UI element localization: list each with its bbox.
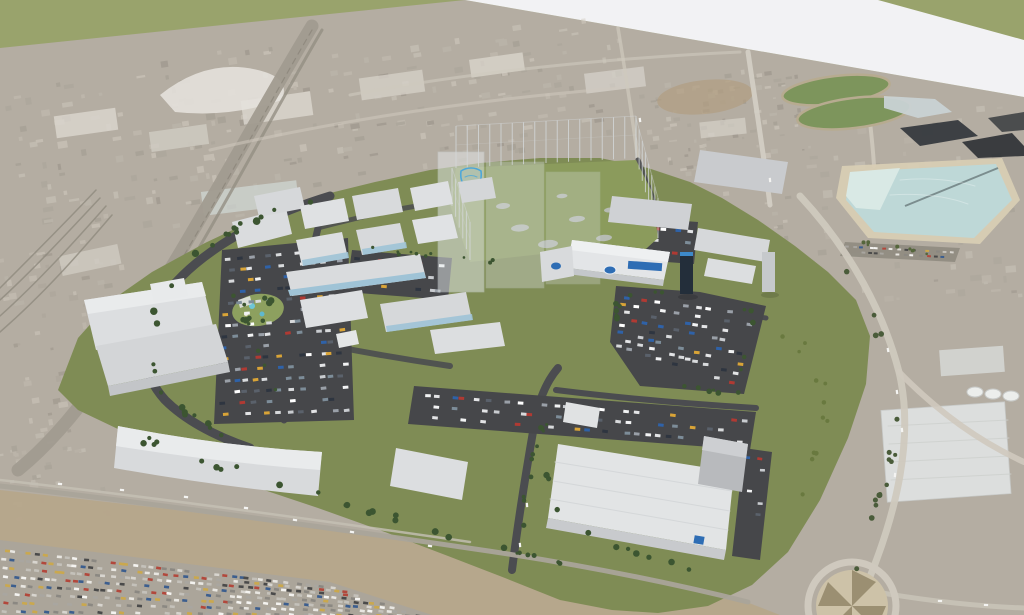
- urban-blocks-e-block: [822, 206, 828, 210]
- car-storage-rows-car: [177, 580, 182, 583]
- urban-blocks-w-block: [49, 291, 56, 297]
- south-strip-cars-car: [526, 413, 532, 416]
- trees-east-lot-tree: [712, 388, 715, 391]
- shrubs-east-field-tree: [803, 341, 807, 345]
- trees-east-lot-tree: [614, 316, 620, 322]
- trees-entrance-drive-tree: [535, 444, 539, 448]
- trees-east-lot-tree: [706, 388, 712, 394]
- urban-blocks-e-block: [958, 289, 966, 296]
- venue-logo-oval: [604, 266, 616, 274]
- trees-east-lot-tree: [742, 355, 746, 359]
- lagoon-parking-cars-car: [936, 251, 940, 253]
- west-lot-cars-car: [263, 355, 269, 358]
- north-lot-cars-car: [415, 288, 421, 291]
- car-storage-rows-car: [166, 579, 171, 582]
- urban-blocks-ne-block: [639, 94, 645, 99]
- urban-blocks-nw-block: [63, 190, 67, 195]
- urban-blocks-nw-block: [41, 109, 50, 116]
- car-storage-rows-car: [338, 604, 343, 607]
- urban-blocks-w-block: [13, 343, 18, 347]
- trees-east-lot-tree: [682, 384, 686, 388]
- urban-blocks-e-block: [823, 190, 833, 198]
- lagoon-parking-cars-car: [853, 246, 857, 248]
- trees-east-lot-tree: [715, 390, 721, 396]
- pylon-light-shadow: [761, 292, 779, 298]
- urban-blocks-w-block: [119, 264, 125, 270]
- urban-blocks-w-block: [42, 313, 47, 318]
- pylon-sign-dark-cap: [680, 252, 693, 256]
- car-storage-rows-car: [209, 600, 214, 603]
- car-storage-rows-car: [230, 590, 235, 593]
- car-storage-rows-car: [78, 580, 83, 583]
- urban-blocks-n-block: [581, 18, 586, 24]
- trees-lagoon-edge-tree: [908, 247, 911, 250]
- east-lot-cars-car: [703, 363, 709, 366]
- urban-blocks-n-block: [444, 146, 448, 149]
- shrubs-east-field-tree: [822, 400, 826, 404]
- east-lot-cars-car: [616, 344, 622, 348]
- south-strip-cars-car: [626, 421, 632, 424]
- urban-blocks-n-block: [606, 129, 612, 135]
- car-storage-rows-car: [19, 559, 24, 562]
- trees-east-lot-tree: [743, 308, 747, 312]
- trees-east-lot-tree: [613, 301, 619, 307]
- lagoon-parking-cars-car: [919, 255, 923, 257]
- car-storage-rows-car: [66, 587, 71, 590]
- urban-blocks-n-block: [423, 163, 428, 169]
- west-lot-cars-car: [288, 410, 294, 413]
- road-cars-vehicle: [519, 543, 522, 547]
- west-lot-cars-car: [223, 413, 229, 416]
- west-lot-cars-car: [255, 355, 261, 358]
- urban-blocks-nw-block: [228, 57, 237, 65]
- pylon-sign-dark: [680, 254, 693, 294]
- urban-blocks-ne-block: [694, 139, 697, 143]
- lagoon-parking-cars-car: [934, 256, 938, 258]
- urban-blocks-nw-block: [81, 149, 87, 156]
- trees-south-boundary-tree: [199, 459, 204, 464]
- west-lot-cars-car: [290, 399, 296, 402]
- east-lot-cars-car: [685, 357, 691, 360]
- trees-east-lot-tree: [739, 368, 743, 372]
- shrubs-east-field-tree: [797, 350, 800, 353]
- urban-blocks-e-block: [1005, 265, 1016, 273]
- lagoon-parking-cars-car: [845, 246, 849, 248]
- south-strip-cars-car: [453, 396, 459, 400]
- car-storage-rows-car: [107, 589, 112, 592]
- car-storage-rows-car: [183, 575, 188, 578]
- car-storage-rows-car: [71, 564, 76, 567]
- car-storage-rows-car: [292, 598, 297, 601]
- car-storage-rows-car: [341, 597, 346, 600]
- urban-blocks-n-block: [518, 147, 525, 153]
- road-cars-vehicle: [984, 604, 988, 606]
- east-lot-cars-car: [645, 354, 651, 357]
- urban-blocks-ne-block: [764, 71, 772, 76]
- south-strip-cars-car: [482, 409, 488, 412]
- urban-blocks-e-block: [884, 296, 894, 302]
- urban-blocks-n-block: [513, 41, 520, 48]
- trees-east-road-tree: [878, 492, 882, 496]
- east-lot-cars-car: [727, 310, 733, 313]
- treatment-tank-1: [967, 387, 983, 397]
- urban-blocks-ne-block: [756, 145, 758, 148]
- car-storage-rows-car: [53, 603, 58, 606]
- urban-blocks-n-block: [556, 74, 561, 80]
- car-storage-rows-car: [273, 580, 278, 583]
- west-lot-cars-car: [267, 400, 273, 403]
- trees-east-lot-tree: [614, 308, 619, 313]
- car-storage-rows-car: [323, 600, 328, 603]
- urban-blocks-e-block: [1011, 290, 1017, 293]
- west-lot-cars-car: [343, 386, 349, 389]
- urban-blocks-nw-block: [245, 50, 250, 56]
- trees-east-road-tree: [887, 450, 892, 455]
- urban-blocks-ne-block: [802, 149, 805, 151]
- trees-warehouse-tree: [585, 530, 591, 536]
- west-lot-cars-car: [337, 374, 343, 377]
- south-strip-cars-car: [623, 410, 629, 414]
- south-strip-cars-car: [433, 405, 439, 409]
- south-strip-cars-car: [458, 397, 464, 400]
- south-strip-cars-car: [742, 419, 748, 422]
- east-lot-cars-car: [649, 331, 655, 334]
- car-storage-rows-car: [296, 590, 301, 593]
- car-storage-rows-car: [81, 603, 86, 606]
- trees-west-arc-tree: [308, 199, 313, 204]
- trees-west-arc-tree: [210, 243, 215, 248]
- urban-blocks-e-block: [965, 251, 972, 259]
- west-lot-cars-car: [288, 365, 294, 368]
- car-storage-rows-car: [248, 586, 253, 589]
- south-strip-cars-car: [555, 404, 561, 407]
- urban-blocks-nw-block: [142, 220, 152, 228]
- west-lot-cars-car: [248, 278, 254, 281]
- west-lot-cars-car: [265, 254, 271, 258]
- car-storage-rows-car: [182, 599, 187, 602]
- car-storage-rows-car: [116, 604, 121, 607]
- trees-west-arc-tree: [179, 404, 186, 411]
- lagoon-parking-cars-car: [943, 251, 947, 253]
- west-lot-cars-car: [229, 268, 235, 272]
- car-storage-rows-car: [135, 612, 140, 615]
- warehouse-east-cars-car: [747, 490, 752, 493]
- trees-west-arc-tree: [205, 420, 211, 426]
- viewport: [0, 0, 1024, 615]
- trees-plaza-tree: [231, 294, 236, 299]
- south-strip-cars-car: [548, 425, 554, 428]
- road-cars-vehicle: [894, 473, 897, 477]
- trees-warehouse-tree: [633, 550, 640, 557]
- car-storage-rows-car: [244, 607, 249, 610]
- car-storage-rows-car: [142, 591, 147, 594]
- west-lot-cars-car: [321, 341, 327, 344]
- lagoon-parking-cars-car: [889, 248, 893, 250]
- west-lot-cars-car: [261, 378, 267, 382]
- pylon-sign-light: [762, 252, 775, 292]
- lagoon-parking-cars-car: [882, 248, 886, 250]
- car-storage-rows-car: [337, 593, 342, 596]
- urban-blocks-nw-block: [99, 92, 103, 96]
- west-lot-cars-car: [278, 366, 284, 369]
- south-strip-cars-car: [474, 398, 480, 402]
- car-storage-rows-car: [343, 593, 348, 596]
- car-storage-rows-car: [252, 577, 257, 580]
- urban-blocks-ne-block: [742, 137, 744, 139]
- urban-blocks-w-block: [32, 397, 40, 404]
- car-storage-rows-car: [278, 584, 283, 587]
- trees-north-streets-tree: [424, 254, 427, 257]
- car-storage-rows-car: [1, 558, 6, 561]
- car-storage-rows-car: [374, 606, 379, 609]
- trees-plaza-tree: [268, 297, 275, 304]
- urban-blocks-nw-block: [160, 60, 168, 67]
- car-storage-rows-car: [115, 597, 120, 600]
- road-cars-vehicle: [938, 600, 942, 602]
- trees-south-boundary-tree: [343, 503, 348, 508]
- car-storage-rows-car: [127, 604, 132, 607]
- ne-lot-cars-car: [672, 251, 678, 254]
- car-storage-rows-car: [111, 575, 116, 578]
- car-storage-rows-car: [100, 574, 105, 577]
- urban-blocks-ne-block: [771, 149, 778, 155]
- trees-lagoon-edge-tree: [861, 240, 865, 244]
- trees-entrance-drive-tree: [529, 475, 534, 480]
- trees-plaza-tree: [261, 318, 266, 323]
- trees-west-arc-tree: [182, 412, 188, 418]
- trees-north-streets-tree: [463, 256, 466, 259]
- urban-blocks-nw-block: [117, 112, 123, 117]
- west-lot-cars-car: [264, 411, 270, 414]
- urban-blocks-nw-block: [5, 105, 12, 111]
- north-lot-cars-car: [381, 285, 387, 289]
- east-lot-cars-car: [728, 350, 734, 353]
- car-storage-rows-car: [119, 576, 124, 579]
- car-storage-rows-car: [244, 581, 249, 584]
- urban-blocks-e-block: [950, 264, 956, 270]
- urban-blocks-ne-block: [684, 154, 688, 157]
- car-storage-rows-car: [164, 585, 169, 588]
- car-storage-rows-car: [281, 588, 286, 591]
- trees-warehouse-tree: [687, 567, 692, 572]
- west-lot-cars-car: [228, 302, 234, 305]
- urban-blocks-nw-block: [116, 155, 124, 163]
- trees-west-lot-medians-tree: [263, 364, 267, 368]
- car-storage-rows-car: [276, 602, 281, 605]
- urban-blocks-n-block: [451, 81, 456, 86]
- south-strip-cars-car: [645, 433, 651, 436]
- lagoon-parking-cars-car: [870, 247, 874, 249]
- urban-blocks-ne-block: [762, 120, 767, 125]
- car-storage-rows-car: [183, 587, 188, 590]
- lagoon-parking-cars-car: [909, 254, 913, 256]
- trees-south-boundary-tree: [276, 481, 283, 488]
- west-lot-cars-car: [229, 279, 235, 282]
- trees-east-road-tree: [884, 483, 888, 487]
- car-storage-rows-car: [355, 598, 360, 601]
- urban-blocks-nw-block: [81, 94, 85, 98]
- urban-blocks-ne-block: [774, 126, 779, 130]
- urban-blocks-ne-block: [688, 148, 691, 152]
- car-storage-rows-car: [307, 587, 312, 590]
- urban-blocks-nw-block: [103, 214, 108, 219]
- lagoon-parking-cars-car: [940, 256, 944, 258]
- urban-blocks-nw-block: [56, 82, 61, 87]
- urban-blocks-mid-block: [777, 225, 783, 230]
- urban-blocks-nw-block: [217, 116, 226, 124]
- south-strip-cars-car: [718, 428, 724, 431]
- trees-north-streets-tree: [371, 246, 374, 249]
- trees-entrance-drive-tree: [529, 457, 534, 462]
- trees-lagoon-edge-tree: [912, 249, 915, 252]
- trees-south-boundary-tree: [366, 510, 373, 517]
- urban-blocks-ne-block: [797, 108, 801, 113]
- trees-west-arc-tree: [219, 433, 224, 438]
- trees-east-road-tree: [874, 503, 879, 508]
- lagoon-parking-cars-car: [896, 253, 900, 255]
- urban-blocks-nw-block: [190, 146, 194, 150]
- urban-blocks-ne-block: [756, 73, 762, 78]
- shrubs-east-field-tree: [810, 457, 814, 461]
- east-warehouse-2: [939, 346, 1005, 376]
- south-strip-cars-car: [672, 424, 678, 427]
- trees-east-road-tree: [873, 498, 878, 503]
- trees-east-lot-tree: [660, 290, 664, 294]
- shrubs-east-field-tree: [823, 382, 827, 386]
- trees-west-lot-medians-tree: [256, 349, 260, 353]
- urban-blocks-nw-block: [197, 166, 205, 173]
- urban-blocks-e-block: [970, 274, 982, 281]
- urban-blocks-ne-block: [687, 123, 691, 127]
- car-storage-rows-car: [185, 581, 190, 584]
- lagoon-parking-cars-car: [874, 252, 878, 254]
- south-strip-cars-car: [434, 395, 440, 398]
- west-lot-cars-car: [288, 388, 294, 391]
- urban-blocks-e-block: [820, 171, 829, 177]
- car-storage-rows-car: [207, 577, 212, 580]
- car-storage-rows-car: [166, 598, 171, 601]
- urban-blocks-e-block: [810, 156, 818, 160]
- east-lot-cars-car: [678, 356, 684, 360]
- trees-south-boundary-tree: [501, 544, 508, 551]
- car-storage-rows-car: [84, 558, 89, 561]
- trees-east-road-tree: [873, 333, 879, 339]
- trees-east-lot-tree: [736, 390, 741, 395]
- pylon-dark-shadow: [678, 294, 698, 300]
- west-lot-cars-car: [225, 258, 231, 261]
- urban-blocks-nw-block: [41, 181, 48, 188]
- car-storage-rows-car: [119, 583, 124, 586]
- urban-blocks-w-block: [56, 375, 62, 382]
- trees-west-lot-medians-tree: [274, 388, 277, 391]
- urban-blocks-ne-block: [755, 85, 762, 91]
- car-storage-rows-car: [207, 583, 212, 586]
- urban-blocks-nw-block: [131, 175, 138, 182]
- urban-blocks-e-block: [896, 297, 899, 300]
- west-lot-cars-car: [276, 354, 282, 358]
- urban-blocks-e-block: [1018, 293, 1023, 297]
- east-lot-cars-car: [738, 362, 744, 366]
- urban-blocks-nw-block: [293, 86, 297, 90]
- trees-entrance-drive-tree: [515, 552, 518, 555]
- urban-blocks-nw-block: [299, 144, 307, 152]
- trees-west-arc-tree: [272, 208, 276, 212]
- urban-blocks-nw-block: [25, 97, 32, 105]
- urban-blocks-ne-block: [794, 75, 798, 79]
- trees-east-lot-tree: [653, 290, 656, 293]
- trees-west-arc-tree: [154, 320, 160, 326]
- urban-blocks-nw-block: [268, 47, 272, 52]
- ne-lot-cars-car: [685, 241, 691, 245]
- urban-blocks-nw-block: [19, 136, 23, 141]
- urban-blocks-e-block: [976, 106, 985, 113]
- trees-south-boundary-tree: [445, 534, 452, 541]
- west-lot-cars-car: [265, 265, 271, 269]
- urban-blocks-nw-block: [297, 157, 302, 163]
- urban-blocks-w-block: [82, 313, 87, 317]
- west-lot-cars-car: [321, 386, 327, 390]
- urban-blocks-e-block: [818, 249, 827, 255]
- east-lot-cars-car: [702, 325, 708, 328]
- car-storage-rows-car: [239, 585, 244, 588]
- car-storage-rows-car: [111, 561, 116, 564]
- urban-blocks-e-block: [894, 262, 900, 269]
- trees-entrance-drive-tree: [521, 523, 526, 528]
- trees-south-boundary-tree: [147, 436, 151, 440]
- car-storage-rows-car: [55, 571, 60, 574]
- south-strip-cars-car: [575, 427, 581, 430]
- road-cars-vehicle: [526, 503, 529, 507]
- west-lot-cars-car: [225, 324, 231, 327]
- urban-blocks-ne-block: [685, 171, 691, 176]
- trees-south-boundary-tree: [393, 512, 399, 518]
- car-storage-rows-car: [313, 608, 318, 611]
- urban-blocks-n-block: [328, 88, 333, 92]
- car-storage-rows-car: [95, 574, 100, 577]
- warehouse-east-cars-car: [760, 469, 765, 472]
- car-storage-rows-car: [25, 552, 30, 555]
- east-lot-cars-car: [655, 341, 661, 344]
- west-lot-cars-car: [290, 320, 296, 323]
- road-cars-vehicle: [184, 496, 188, 499]
- trees-west-lot-medians-tree: [247, 322, 250, 325]
- trees-south-boundary-tree: [140, 440, 146, 446]
- south-strip-cars-car: [634, 411, 640, 415]
- east-lot-cars-car: [695, 315, 701, 319]
- trees-west-lot-medians-tree: [242, 303, 246, 307]
- urban-blocks-sw-block: [11, 445, 17, 452]
- urban-blocks-n-block: [364, 57, 370, 63]
- west-lot-cars-car: [327, 340, 333, 343]
- urban-blocks-w-block: [9, 293, 17, 300]
- trees-plaza-tree: [262, 295, 267, 300]
- car-storage-rows-car: [74, 587, 79, 590]
- south-strip-cars-car: [480, 420, 486, 424]
- trees-north-streets-tree: [397, 252, 401, 256]
- trees-south-boundary-tree: [392, 517, 398, 523]
- car-storage-rows-car: [40, 594, 45, 597]
- west-lot-cars-car: [244, 356, 250, 359]
- urban-blocks-ne-block: [795, 124, 799, 127]
- ghost-slab-2: [486, 162, 544, 288]
- trees-west-arc-tree: [192, 250, 199, 257]
- trees-east-lot-tree: [750, 320, 756, 326]
- car-storage-rows-car: [387, 610, 392, 613]
- car-storage-rows-car: [353, 594, 358, 597]
- trees-east-lot-tree: [696, 385, 701, 390]
- urban-blocks-n-block: [420, 133, 426, 140]
- south-strip-cars-car: [690, 426, 696, 430]
